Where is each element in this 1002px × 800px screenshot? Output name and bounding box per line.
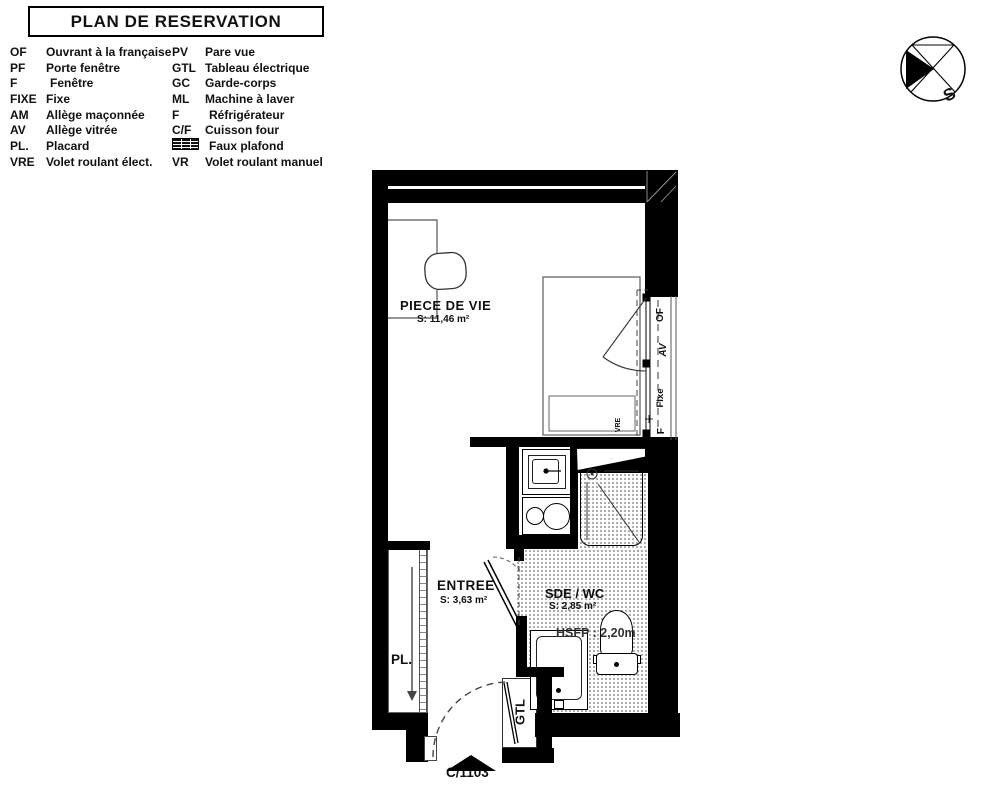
wall-entry-bottom <box>372 713 428 730</box>
legend-row: AVAllège vitrée <box>10 122 171 138</box>
gtl-label: GTL <box>505 696 535 729</box>
shower-partition-block <box>575 443 650 473</box>
legend-row: VREVolet roulant élect. <box>10 154 171 170</box>
legend-label: Volet roulant manuel <box>205 155 323 169</box>
legend-abbr: AV <box>10 123 46 137</box>
legend-label: Faux plafond <box>205 139 284 153</box>
entry-marker-triangle <box>446 755 496 771</box>
closet-sliding-door <box>419 549 427 713</box>
legend-row: VRVolet roulant manuel <box>172 154 323 170</box>
legend-row: FFenêtre <box>10 75 171 91</box>
toilet-flush-button <box>614 662 619 667</box>
legend-row: GTLTableau électrique <box>172 60 323 76</box>
legend-abbr: GTL <box>172 61 205 75</box>
cooktop-burner-large <box>543 503 570 530</box>
floor-plan-page: PLAN DE RESERVATION OFOuvrant à la franç… <box>0 0 1002 800</box>
legend-abbr: AM <box>10 108 46 122</box>
legend-row: PL.Placard <box>10 138 171 154</box>
wall-gtl-bottom <box>502 748 554 763</box>
vre-label: VRE <box>611 413 625 437</box>
room-area-bath: S: 2,85 m² <box>549 601 596 612</box>
room-label-living: PIECE DE VIE <box>400 298 491 313</box>
legend-label: Volet roulant élect. <box>46 155 152 169</box>
legend-row: C/FCuisson four <box>172 122 323 138</box>
legend-abbr: F <box>172 108 205 122</box>
legend-abbr: GC <box>172 76 205 90</box>
shower-partition-panel <box>577 447 645 470</box>
legend-row: MLMachine à laver <box>172 91 323 107</box>
legend-label: Ouvrant à la française <box>46 45 171 59</box>
legend-label: Pare vue <box>205 45 255 59</box>
wall-bathroom-bottom <box>535 713 680 737</box>
legend-row: GCGarde-corps <box>172 75 323 91</box>
casement-swing <box>603 298 646 371</box>
cooktop-burner-small <box>526 507 544 525</box>
legend-column-1: OFOuvrant à la française PFPorte fenêtre… <box>10 44 171 170</box>
legend-abbr <box>172 138 205 153</box>
legend-row: FIXEFixe <box>10 91 171 107</box>
legend-label: Réfrigérateur <box>205 108 284 122</box>
compass-icon <box>901 37 965 101</box>
legend-row: FRéfrigérateur <box>172 107 323 123</box>
wall-bath-southwest <box>516 667 564 677</box>
washbasin-tap <box>554 700 564 709</box>
plan-title: PLAN DE RESERVATION <box>28 6 324 37</box>
window-label-fixe: Fixe <box>653 385 667 411</box>
legend-abbr: PL. <box>10 139 46 153</box>
wall-kitchen-left <box>506 437 519 549</box>
legend-label: Tableau électrique <box>205 61 309 75</box>
legend-label: Allège maçonnée <box>46 108 145 122</box>
legend-row: PVPare vue <box>172 44 323 60</box>
legend-label: Placard <box>46 139 89 153</box>
room-label-bath: SDE / WC <box>545 586 604 601</box>
window-frame <box>643 294 653 450</box>
faux-plafond-swatch <box>172 138 199 150</box>
legend-row: PFPorte fenêtre <box>10 60 171 76</box>
wall-bath-west <box>516 616 527 669</box>
legend-row: AMAllège maçonnée <box>10 107 171 123</box>
legend-label: Cuisson four <box>205 123 279 137</box>
legend-abbr: PV <box>172 45 205 59</box>
legend-label: Fixe <box>46 92 70 106</box>
legend-abbr: F <box>10 76 46 90</box>
legend-abbr: FIXE <box>10 92 46 106</box>
wall-left <box>372 170 388 730</box>
legend-label: Fenêtre <box>46 76 93 90</box>
legend-abbr: VR <box>172 155 205 169</box>
wall-closet-top <box>384 541 430 550</box>
kitchen-sink-basin <box>532 459 559 484</box>
ceiling-height-label: HSFP : 2,20m <box>556 626 636 640</box>
legend-abbr: ML <box>172 92 205 106</box>
legend-label: Porte fenêtre <box>46 61 120 75</box>
legend-label: Allège vitrée <box>46 123 117 137</box>
legend-abbr: VRE <box>10 155 46 169</box>
compass-south-label: S <box>940 84 959 107</box>
wall-top-joint-line <box>386 186 645 189</box>
window-label-of: OF <box>653 305 667 325</box>
room-area-living: S: 11,46 m² <box>417 314 469 325</box>
bed-outline <box>543 277 640 435</box>
closet-label: PL. <box>391 652 412 667</box>
legend-row: Faux plafond <box>172 138 323 154</box>
room-area-entry: S: 3,63 m² <box>440 595 487 606</box>
legend-abbr: OF <box>10 45 46 59</box>
legend-label: Garde-corps <box>205 76 276 90</box>
legend-label: Machine à laver <box>205 92 294 106</box>
washbasin-drain <box>556 688 561 693</box>
window-sill <box>671 296 676 440</box>
legend-abbr: C/F <box>172 123 205 137</box>
wall-right-upper <box>645 170 678 297</box>
legend-row: OFOuvrant à la française <box>10 44 171 60</box>
wall-bath-door-jamb <box>514 545 524 561</box>
entry-door-jamb <box>424 736 437 761</box>
wall-right-lower <box>648 437 678 713</box>
legend-column-2: PVPare vue GTLTableau électrique GCGarde… <box>172 44 323 170</box>
legend-abbr: PF <box>10 61 46 75</box>
room-label-entry: ENTREE <box>437 578 495 593</box>
stool <box>424 252 467 291</box>
window-label-av: AV <box>656 340 670 360</box>
window-label-f: F <box>654 423 668 439</box>
entry-door-arc <box>433 682 508 757</box>
